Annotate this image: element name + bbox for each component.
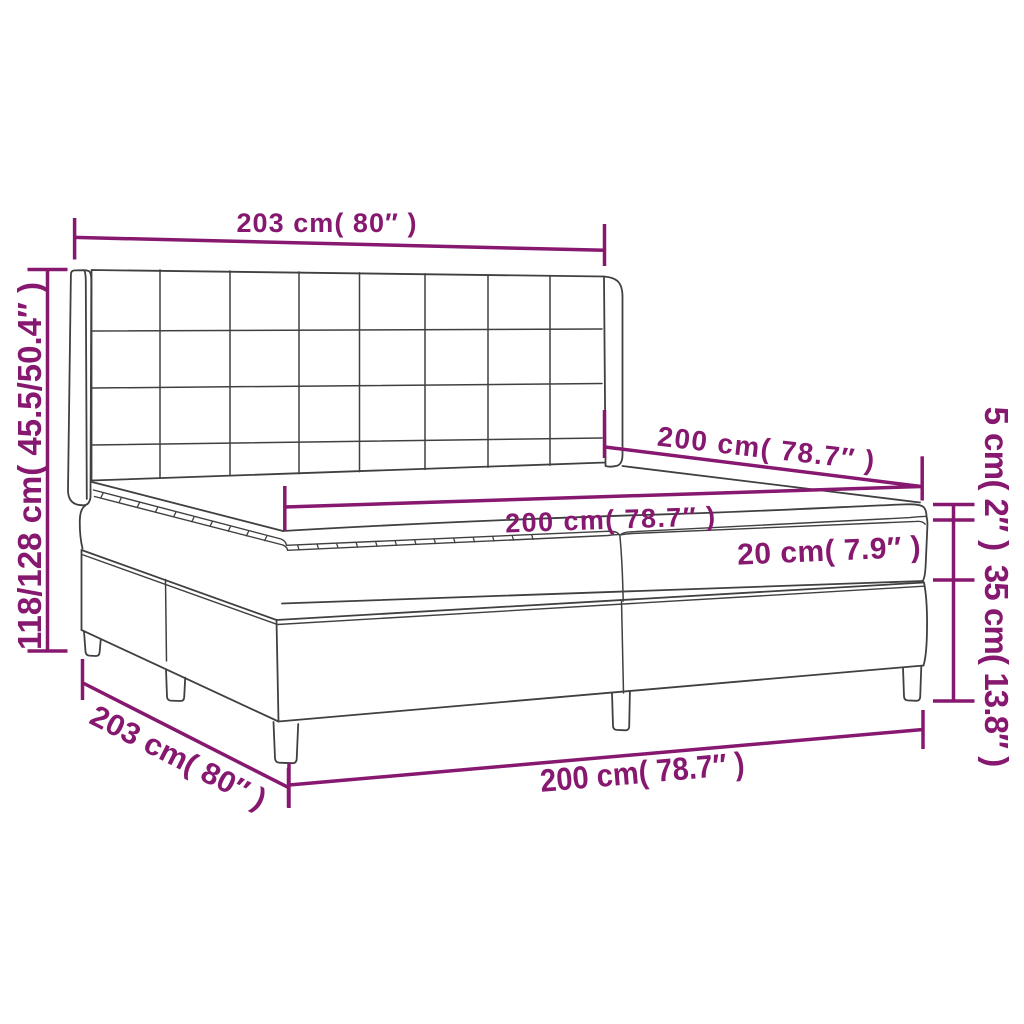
svg-text:35 cm( 13.8″ ): 35 cm( 13.8″ ) [978,565,1015,768]
svg-text:5 cm( 2″ ): 5 cm( 2″ ) [978,407,1015,552]
svg-text:118/128 cm( 45.5/50.4″ ): 118/128 cm( 45.5/50.4″ ) [11,282,48,650]
svg-text:203 cm( 80″ ): 203 cm( 80″ ) [237,208,417,238]
